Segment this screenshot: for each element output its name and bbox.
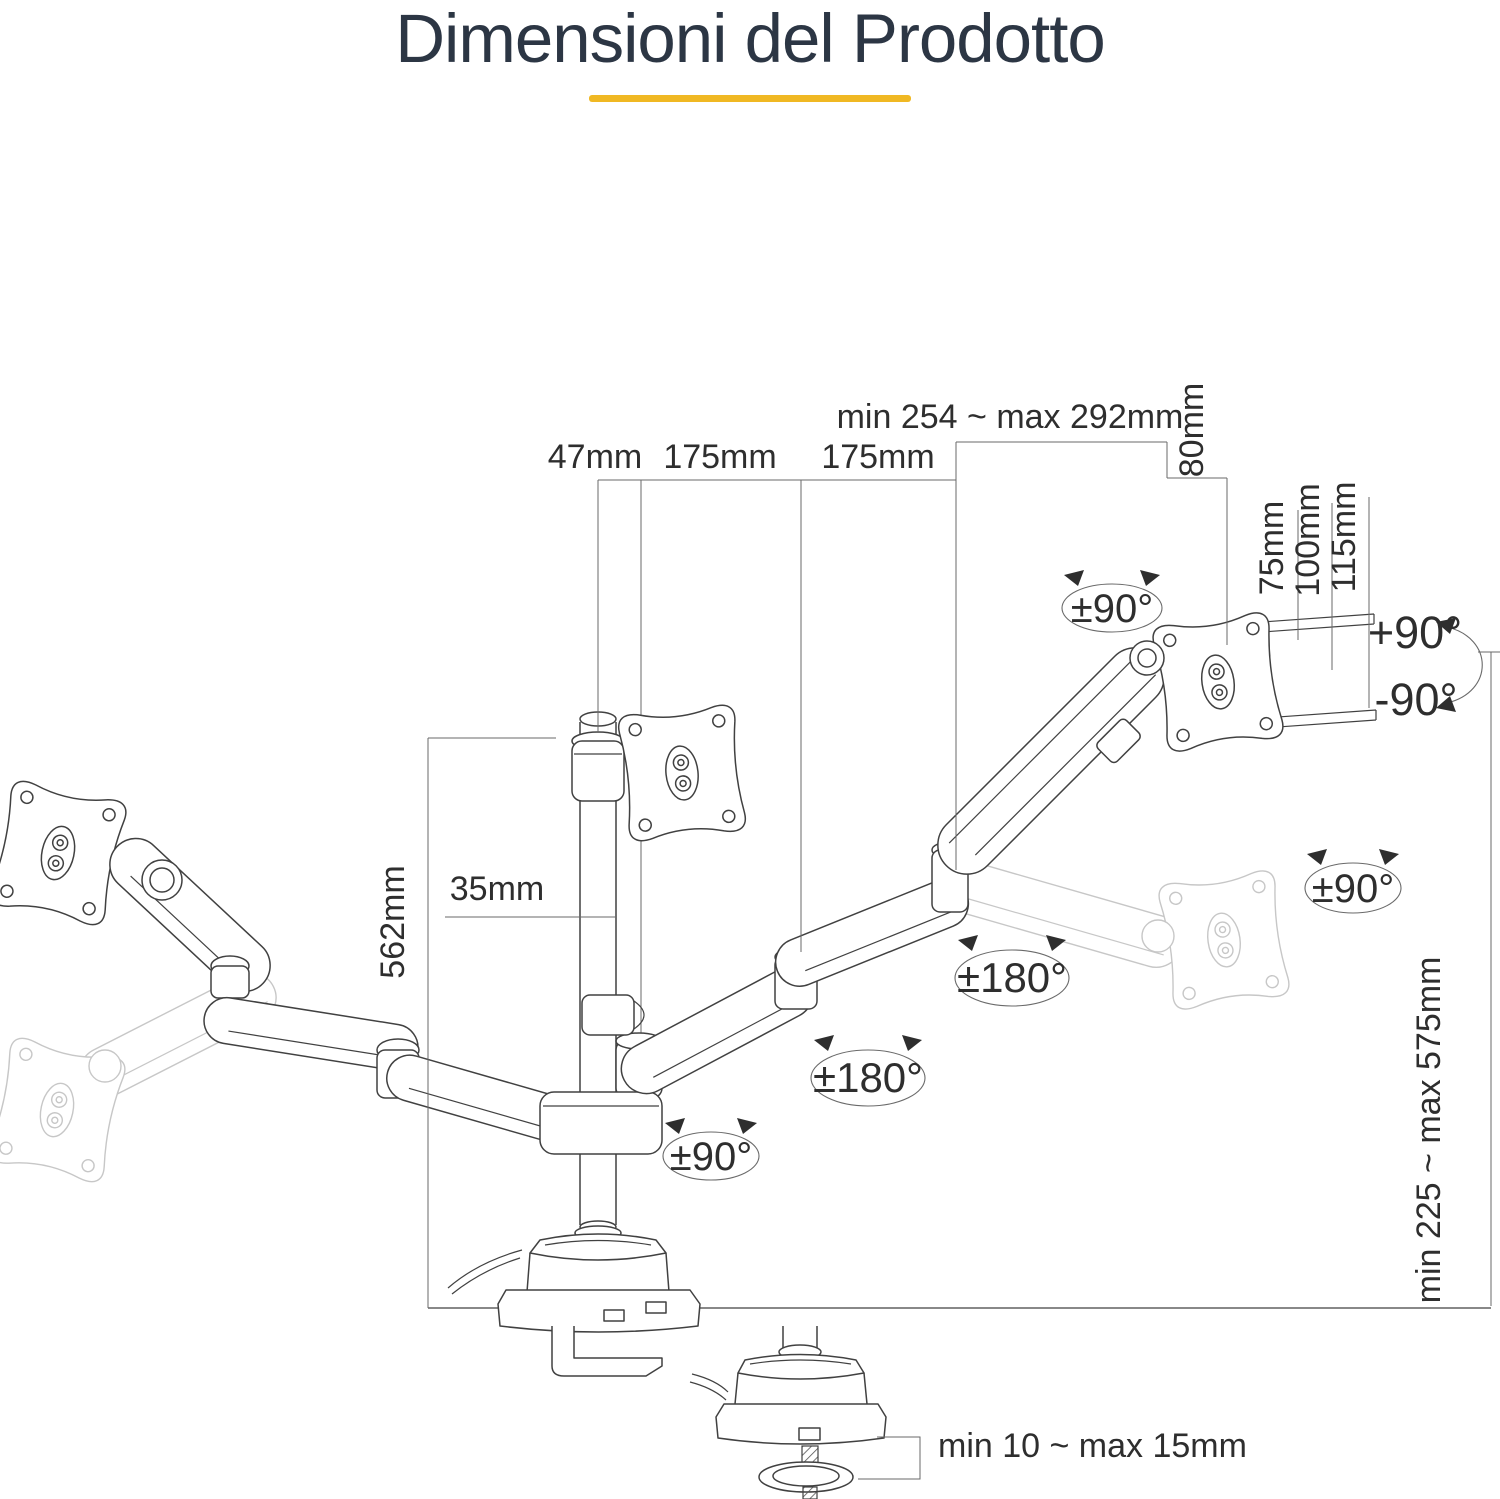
dim-label-35mm: 35mm (450, 870, 544, 908)
dim-label-75mm: 75mm (1253, 501, 1291, 595)
label-swivel-top: ±90° (1071, 587, 1153, 631)
dim-label-min10-max15: min 10 ~ max 15mm (938, 1427, 1247, 1465)
header: Dimensioni del Prodotto (0, 0, 1500, 102)
dim-label-175mm-1: 175mm (663, 438, 776, 476)
dim-label-47mm: 47mm (548, 438, 642, 476)
dim-label-100mm: 100mm (1289, 483, 1327, 596)
dim-label-115mm: 115mm (1325, 482, 1363, 593)
cable (448, 1250, 522, 1294)
right-arm-chain (613, 611, 1376, 1102)
dim-label-min225-max575: min 225 ~ max 575mm (1410, 957, 1448, 1304)
label-plus-90: +90° (1368, 607, 1462, 658)
label-swivel-arm-inner: ±180° (813, 1054, 923, 1101)
desk-base (448, 1221, 700, 1376)
dim-label-562mm: 562mm (374, 865, 412, 978)
product-dimensions-diagram: 47mm 175mm 175mm min 254 ~ max 292mm 80m… (0, 0, 1500, 1499)
product-dimensions-page: 47mm 175mm 175mm min 254 ~ max 292mm 80m… (0, 0, 1500, 1499)
cable-clip (582, 995, 634, 1035)
dim-label-175mm-2: 175mm (821, 438, 934, 476)
label-minus-90: -90° (1374, 674, 1457, 725)
clamp-detail (690, 1326, 886, 1499)
title-underline (589, 95, 911, 102)
rotation-indicators (663, 570, 1401, 1180)
page-title: Dimensioni del Prodotto (0, 0, 1500, 77)
label-rotate-right: ±90° (1312, 867, 1394, 911)
dim-label-80mm: 80mm (1173, 383, 1211, 477)
label-swivel-base: ±90° (670, 1135, 752, 1179)
under-desk-clamp (552, 1326, 662, 1376)
cable (690, 1374, 728, 1400)
dim-label-min254-max292: min 254 ~ max 292mm (837, 398, 1184, 436)
label-swivel-arm-outer: ±180° (957, 954, 1067, 1001)
